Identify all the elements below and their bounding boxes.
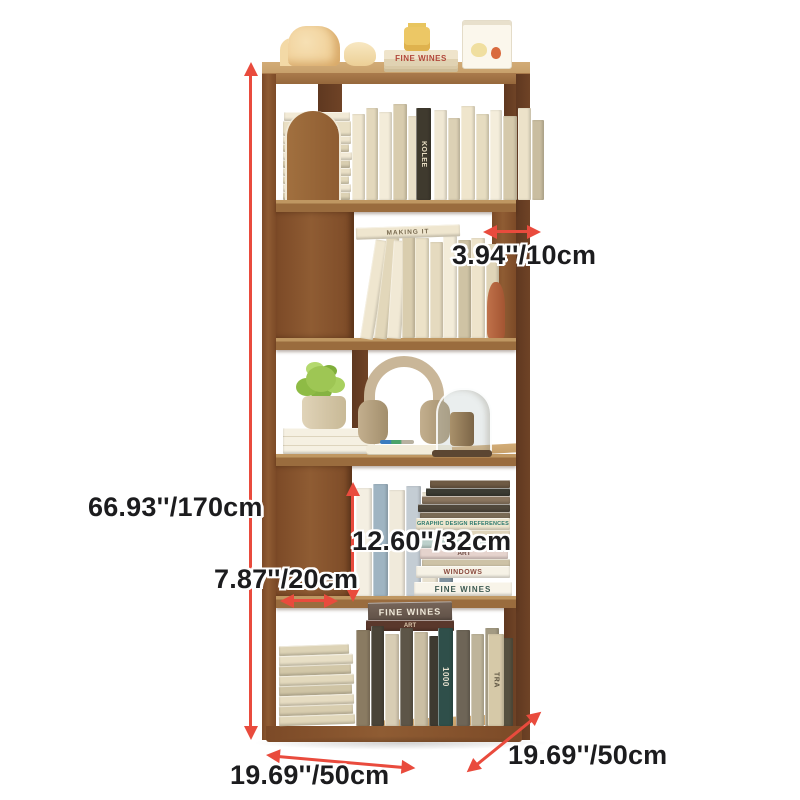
book-spine <box>371 626 384 726</box>
side-panel-arrow-left <box>280 594 294 608</box>
book-spine <box>415 238 429 338</box>
tier1-dark-book-title: KOLEE <box>420 141 427 168</box>
decor-book-title: FINE WINES <box>395 54 447 63</box>
tier2-left-panel <box>276 212 354 338</box>
tier5-dark-book: 1000 <box>438 628 453 726</box>
book-spine <box>471 634 484 726</box>
calendar-pear-art <box>471 43 487 57</box>
stacked-book <box>426 488 510 496</box>
book-spine <box>414 632 428 726</box>
glass-cloche <box>436 388 492 456</box>
side-panel-arrow-right <box>324 594 338 608</box>
side-panel-width-label: 7.87''/20cm <box>214 564 358 595</box>
panel-depth-arrow-left <box>483 225 497 239</box>
book-spine <box>379 112 392 200</box>
tier4-book-fine-wines: FINE WINES <box>414 582 512 596</box>
tier5-book-fine-wines: FINE WINES <box>368 601 452 621</box>
bird-ornament <box>344 42 376 66</box>
book-spine <box>434 110 447 200</box>
inner-height-label: 12.60''/32cm <box>352 526 511 557</box>
stacked-book <box>279 714 355 727</box>
tier4-book-fine-wines-title: FINE WINES <box>435 585 492 594</box>
shelf-top-edge <box>262 73 530 84</box>
arch-bookend <box>287 111 339 200</box>
total-height-arrow-bottom <box>244 726 258 740</box>
book-spine <box>356 630 370 726</box>
book-spine <box>402 234 415 338</box>
tier1-dark-book: KOLEE <box>416 108 431 200</box>
book-spine <box>366 108 378 200</box>
stacked-book <box>430 480 510 488</box>
base-width-left-label: 19.69''/50cm <box>230 760 389 791</box>
book-spine <box>490 110 502 200</box>
total-height-label: 66.93''/170cm <box>88 492 263 523</box>
book-spine <box>518 108 531 200</box>
base-width-right-label: 19.69''/50cm <box>508 740 667 771</box>
shelf-board-2 <box>276 338 516 350</box>
total-height-arrow-line <box>249 74 252 728</box>
cloche-base <box>432 450 492 457</box>
tier5-right-book-title: TRA <box>493 672 500 688</box>
book-spine <box>430 242 443 338</box>
book-spine <box>456 630 470 726</box>
tier5-dark-book-title: 1000 <box>441 667 450 687</box>
desk-calendar <box>462 20 512 69</box>
tier5-right-book: TRA <box>488 634 504 726</box>
panel-depth-arrow-right <box>527 225 541 239</box>
robot-toy <box>404 27 430 51</box>
base-width-left-head-b <box>401 760 416 775</box>
cloche-contents <box>450 412 474 446</box>
decor-book-stack: FINE WINES <box>384 50 458 66</box>
calendar-fruit-art <box>491 47 501 59</box>
book-spine <box>532 120 544 200</box>
stacked-book <box>422 496 510 504</box>
plant-foliage <box>306 366 336 392</box>
book-spine <box>393 104 407 200</box>
book-spine <box>448 118 460 200</box>
figurine-ornament <box>288 26 340 66</box>
headphone-earcup-left <box>358 400 388 444</box>
tier4-book-windows-title: WINDOWS <box>444 569 483 576</box>
book-spine <box>385 634 399 726</box>
plant-pot <box>302 396 346 429</box>
pens <box>380 440 414 444</box>
panel-depth-label: 3.94''/10cm <box>452 240 596 271</box>
book-spine <box>476 114 489 200</box>
total-height-arrow-top <box>244 62 258 76</box>
book-spine <box>503 116 517 200</box>
book-spine <box>461 106 475 200</box>
shelf-left-stile <box>262 74 276 740</box>
book-spine <box>352 114 365 200</box>
book-spine <box>400 628 413 726</box>
product-dimension-diagram: FINE WINES KOLEE CHO 1984-2003 <box>0 0 800 800</box>
tier2-flat-book-title: MAKING IT <box>386 228 429 236</box>
tier5-book-fine-wines-title: FINE WINES <box>379 606 442 617</box>
terracotta-vase <box>487 282 505 338</box>
stacked-book <box>418 504 510 512</box>
shelf-board-1 <box>276 200 516 212</box>
inner-height-arrow-top <box>346 482 360 496</box>
tier4-book-windows: WINDOWS <box>416 566 510 578</box>
